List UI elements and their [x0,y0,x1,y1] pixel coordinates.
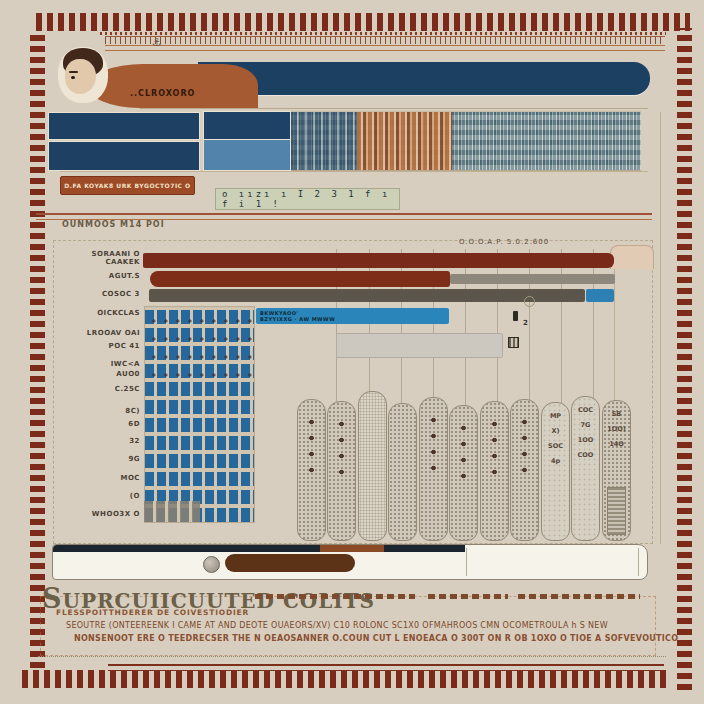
bottom-dotted-line [38,656,666,658]
stitch-border-right [677,28,692,690]
row-label: SORAANI O CAAKEK [54,250,140,266]
footer-knob-icon[interactable] [203,556,220,573]
bar-darkgray [149,289,585,302]
capsule-value: MP [550,412,561,420]
bar-maroon-pill [150,271,450,287]
row-label: LROOAV OAI [54,329,140,337]
stitch-subline-top [100,32,666,35]
app-canvas: ..CLROXORO ⚓ D.FA KOYAK8 URK BYGOCTO7IC … [0,0,704,704]
stitch-border-bottom [22,670,670,688]
striped-texture-band [291,111,641,171]
stitch-border-top [36,13,690,31]
footer-subheading: Flesspoitthderer de Coivestiodier [56,608,249,617]
glyph-strip-text: o ıızı ı I 2 3 1 f ı f i 1 ! [222,189,399,209]
capsule-value: COC [578,406,593,414]
bar-blue-text-2: BZYYIXXG · AW MWWW [260,316,335,322]
row-label: AUO0 [54,370,140,378]
avatar-eye [71,76,75,79]
capsule-value: 14O [609,440,624,448]
marker-digit-icon: 2 [523,319,528,327]
section-caption: OUNMOOS M14 POI [62,220,165,229]
redacted-dash-line [428,594,508,599]
tile-blue-light[interactable] [203,139,291,171]
main-panel: O.O.O.A.P. 5.0.2.600 SORAANI O CAAKEK AG… [53,240,653,544]
redacted-dash-line [255,594,415,599]
band-navy-patch [291,112,359,170]
row-label: C.25C [54,385,140,393]
axis-label: 32 [54,437,140,445]
footer-divider [638,548,639,576]
panel-note: O.O.O.A.P. 5.0.2.600 [459,238,549,246]
marker-bar-icon [513,311,518,321]
capsule-value: SOC [548,442,563,450]
axis-label: 6D [54,420,140,428]
capsule-texture-block [607,487,626,535]
capsule-value: 4p [551,457,560,465]
waffle-gray-cells [144,501,200,522]
avatar-brow [69,71,78,73]
capsule-bar [358,391,387,541]
axis-label: (O [54,492,140,500]
bar-blue: BKWKYAOO' BZYYIXXG · AW MWWW [256,308,449,324]
marker-grid-icon [508,337,519,348]
capsule-value: 1OO [578,436,594,444]
ring-icon [524,296,535,307]
footer-line-1: SEOUTRE (ONTEEREENK I CAME AT AND DEOTE … [66,621,608,630]
header-title-bar [198,62,650,95]
footer-divider [466,548,467,576]
capsule-bar: SB 1OO) 14O [602,400,631,541]
section-divider [36,213,652,220]
capsule-value: 1OO) [607,425,626,433]
capsule-bar [480,401,509,541]
bar-gray-tail [450,274,615,284]
footer-scrollbar-track-segment [320,545,384,552]
footer-scrollbar-track [53,545,465,552]
tile-navy-3[interactable] [203,111,291,141]
capsule-value: X) [552,427,560,435]
top-double-line [105,45,665,51]
footer-scrollbar[interactable] [52,544,648,580]
capsule-value: COO [578,451,594,459]
capsule-chart: MP X) SOC 4p COC 7G 1OO COO SB 1OO) [297,391,637,539]
row-label: OICKCLAS [54,309,140,317]
top-ruler [105,36,665,44]
capsule-bar: MP X) SOC 4p [541,402,570,541]
anchor-icon: ⚓ [152,36,162,49]
band-bottom-rule [60,171,648,172]
capsule-bar [388,403,417,541]
capsule-bar [419,397,448,541]
band-orange-patch [357,112,452,170]
panel-corner-tab[interactable] [610,245,654,269]
footer-thumb-pill[interactable] [225,554,355,572]
action-button-label: D.FA KOYAK8 URK BYGOCTO7IC O [64,182,190,189]
capsule-value: SB [612,410,622,418]
bottom-double-line [108,664,664,671]
capsule-bar [510,399,539,541]
glyph-strip-input[interactable]: o ıızı ı I 2 3 1 f ı f i 1 ! [215,188,400,210]
axis-label: MOC [54,474,140,482]
axis-label: 9G [54,455,140,463]
row-label: POC 41 [54,342,140,350]
tile-navy-1[interactable] [48,112,200,140]
logo-label: ..CLROXORO [130,89,195,98]
bar-darkgray-blue-segment [586,289,614,302]
logo-blob: ..CLROXORO [88,64,258,108]
row-label: COSOC 3 [54,290,140,298]
axis-label: WHOO3X O [54,510,140,518]
capsule-bar [449,405,478,541]
footer-line-2: NONSENOOT ERE O TEEDRECSER THE N OEAOSAN… [74,634,678,643]
row-label: IWC<A [54,360,140,368]
redacted-dash-line [518,594,640,599]
avatar[interactable] [58,47,108,103]
stitch-border-left [30,30,45,668]
bar-maroon-full [143,253,614,268]
waffle-grid-dots [144,306,253,390]
bar-lightgray [336,333,503,358]
right-edge-line [660,112,661,544]
row-label: AGUT.S [54,272,140,280]
action-button[interactable]: D.FA KOYAK8 URK BYGOCTO7IC O [60,176,195,195]
axis-label: 8C) [54,407,140,415]
capsule-bar [327,401,356,541]
tile-navy-2[interactable] [48,141,200,171]
capsule-bar [297,399,326,541]
band-top-rule [140,108,648,109]
capsule-bar: COC 7G 1OO COO [571,396,600,541]
avatar-face [65,59,96,94]
capsule-value: 7G [581,421,591,429]
